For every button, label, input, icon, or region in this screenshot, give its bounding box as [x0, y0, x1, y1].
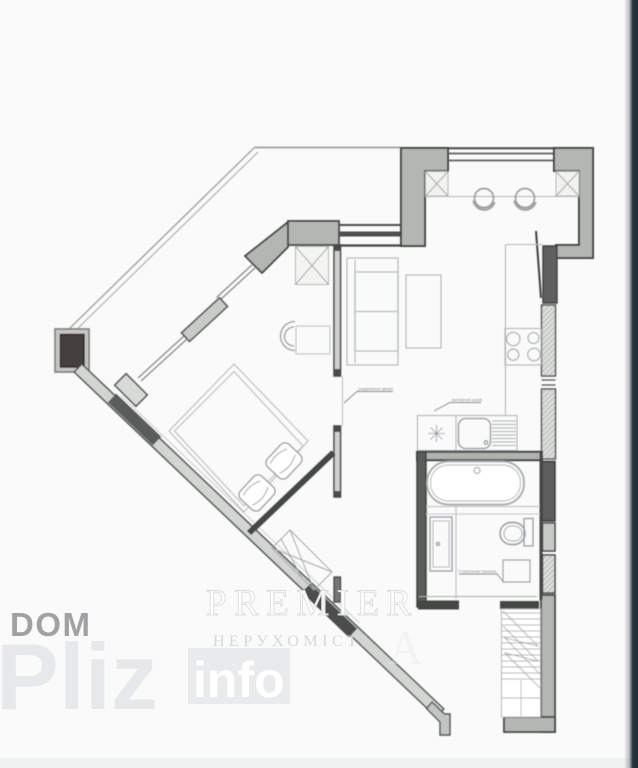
svg-text:Стиральная машина: Стиральная машина — [458, 569, 497, 574]
svg-text:раздвижные двери: раздвижные двери — [358, 386, 393, 391]
svg-text:PREMIER: PREMIER — [206, 583, 419, 624]
svg-text:Pliz: Pliz — [0, 624, 158, 729]
svg-text:вытяжной шкаф: вытяжной шкаф — [452, 397, 483, 402]
svg-text:НЕРУХОМІСТЬ: НЕРУХОМІСТЬ — [213, 633, 375, 650]
svg-text:А: А — [388, 622, 423, 675]
svg-text:info: info — [193, 652, 285, 708]
